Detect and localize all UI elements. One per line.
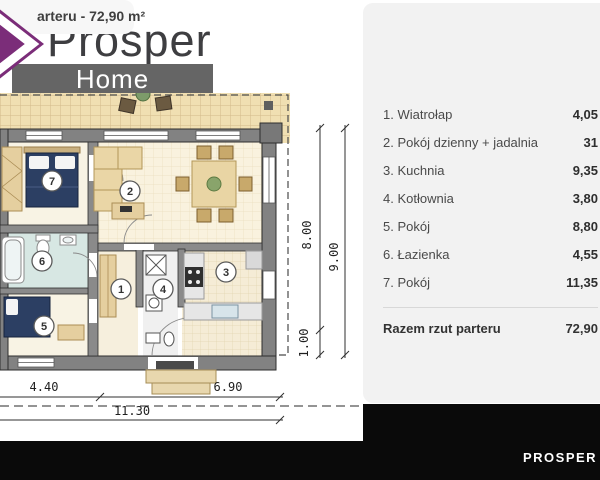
svg-text:7: 7 [49, 176, 55, 188]
utility-sink [146, 333, 160, 343]
legend-row: 5. Pokój 8,80 [383, 212, 598, 240]
room-circle-3: 3 [216, 262, 236, 282]
legend-divider [383, 307, 598, 308]
total-label: Razem rzut parteru [383, 321, 501, 336]
bedroom7-furniture [2, 147, 80, 211]
footer-strip [0, 441, 600, 480]
room-area: 8,80 [573, 219, 598, 234]
svg-text:1.00: 1.00 [297, 329, 311, 358]
room-circle-7: 7 [42, 171, 62, 191]
small-post [264, 101, 273, 110]
floor-plan: 7 2 3 1 4 6 5 8.00 [0, 85, 370, 441]
svg-text:11.30: 11.30 [114, 404, 150, 418]
room-circle-6: 6 [32, 251, 52, 271]
legend-row: 1. Wiatrołap 4,05 [383, 100, 598, 128]
svg-text:5: 5 [41, 321, 47, 333]
legend-row: 2. Pokój dzienny + jadalnia 31 [383, 128, 598, 156]
room-area: 4,55 [573, 247, 598, 262]
room-label: 3. Kuchnia [383, 163, 444, 178]
legend-total-row: Razem rzut parteru 72,90 [383, 315, 598, 341]
room-circle-5: 5 [34, 316, 54, 336]
room-label: 1. Wiatrołap [383, 107, 452, 122]
room-label: 5. Pokój [383, 219, 430, 234]
room-area: 4,05 [573, 107, 598, 122]
room-area: 31 [584, 135, 598, 150]
room-label: 4. Kotłownia [383, 191, 454, 206]
room-label: 2. Pokój dzienny + jadalnia [383, 135, 538, 150]
room-circle-2: 2 [120, 181, 140, 201]
room-area: 11,35 [566, 275, 598, 290]
svg-text:2: 2 [127, 186, 133, 198]
svg-text:6: 6 [39, 256, 45, 268]
legend-row: 7. Pokój 11,35 [383, 268, 598, 296]
room-circle-4: 4 [153, 279, 173, 299]
room-area: 3,80 [573, 191, 598, 206]
total-value: 72,90 [565, 321, 598, 336]
listing-floorplan-image: 7 2 3 1 4 6 5 8.00 [0, 0, 600, 480]
brand-subname: Home [76, 66, 149, 92]
table-plant [207, 177, 221, 191]
desk5 [58, 325, 84, 340]
room-label: 7. Pokój [383, 275, 430, 290]
room-label: 6. Łazienka [383, 247, 450, 262]
svg-text:9.00: 9.00 [327, 243, 341, 272]
room-legend-panel: 1. Wiatrołap 4,05 2. Pokój dzienny + jad… [363, 3, 600, 403]
legend-row: 4. Kotłownia 3,80 [383, 184, 598, 212]
svg-text:4: 4 [160, 284, 167, 296]
stove [185, 267, 203, 287]
room-area: 9,35 [573, 163, 598, 178]
svg-text:8.00: 8.00 [300, 221, 314, 250]
headboard [24, 147, 80, 153]
plan-area-label: arteru - 72,90 m² [37, 8, 145, 24]
room-circle-1: 1 [111, 279, 131, 299]
svg-text:1: 1 [118, 284, 124, 296]
svg-text:4.40: 4.40 [30, 380, 59, 394]
svg-text:3: 3 [223, 267, 229, 279]
svg-text:6.90: 6.90 [214, 380, 243, 394]
prosper-home-logo-icon [0, 0, 46, 92]
legend-row: 6. Łazienka 4,55 [383, 240, 598, 268]
toilet4 [164, 332, 174, 346]
legend-row: 3. Kuchnia 9,35 [383, 156, 598, 184]
footer-brand: PROSPER HOME [523, 450, 600, 465]
terrace-post [260, 123, 282, 143]
fridge [246, 251, 262, 269]
sink [212, 305, 238, 318]
